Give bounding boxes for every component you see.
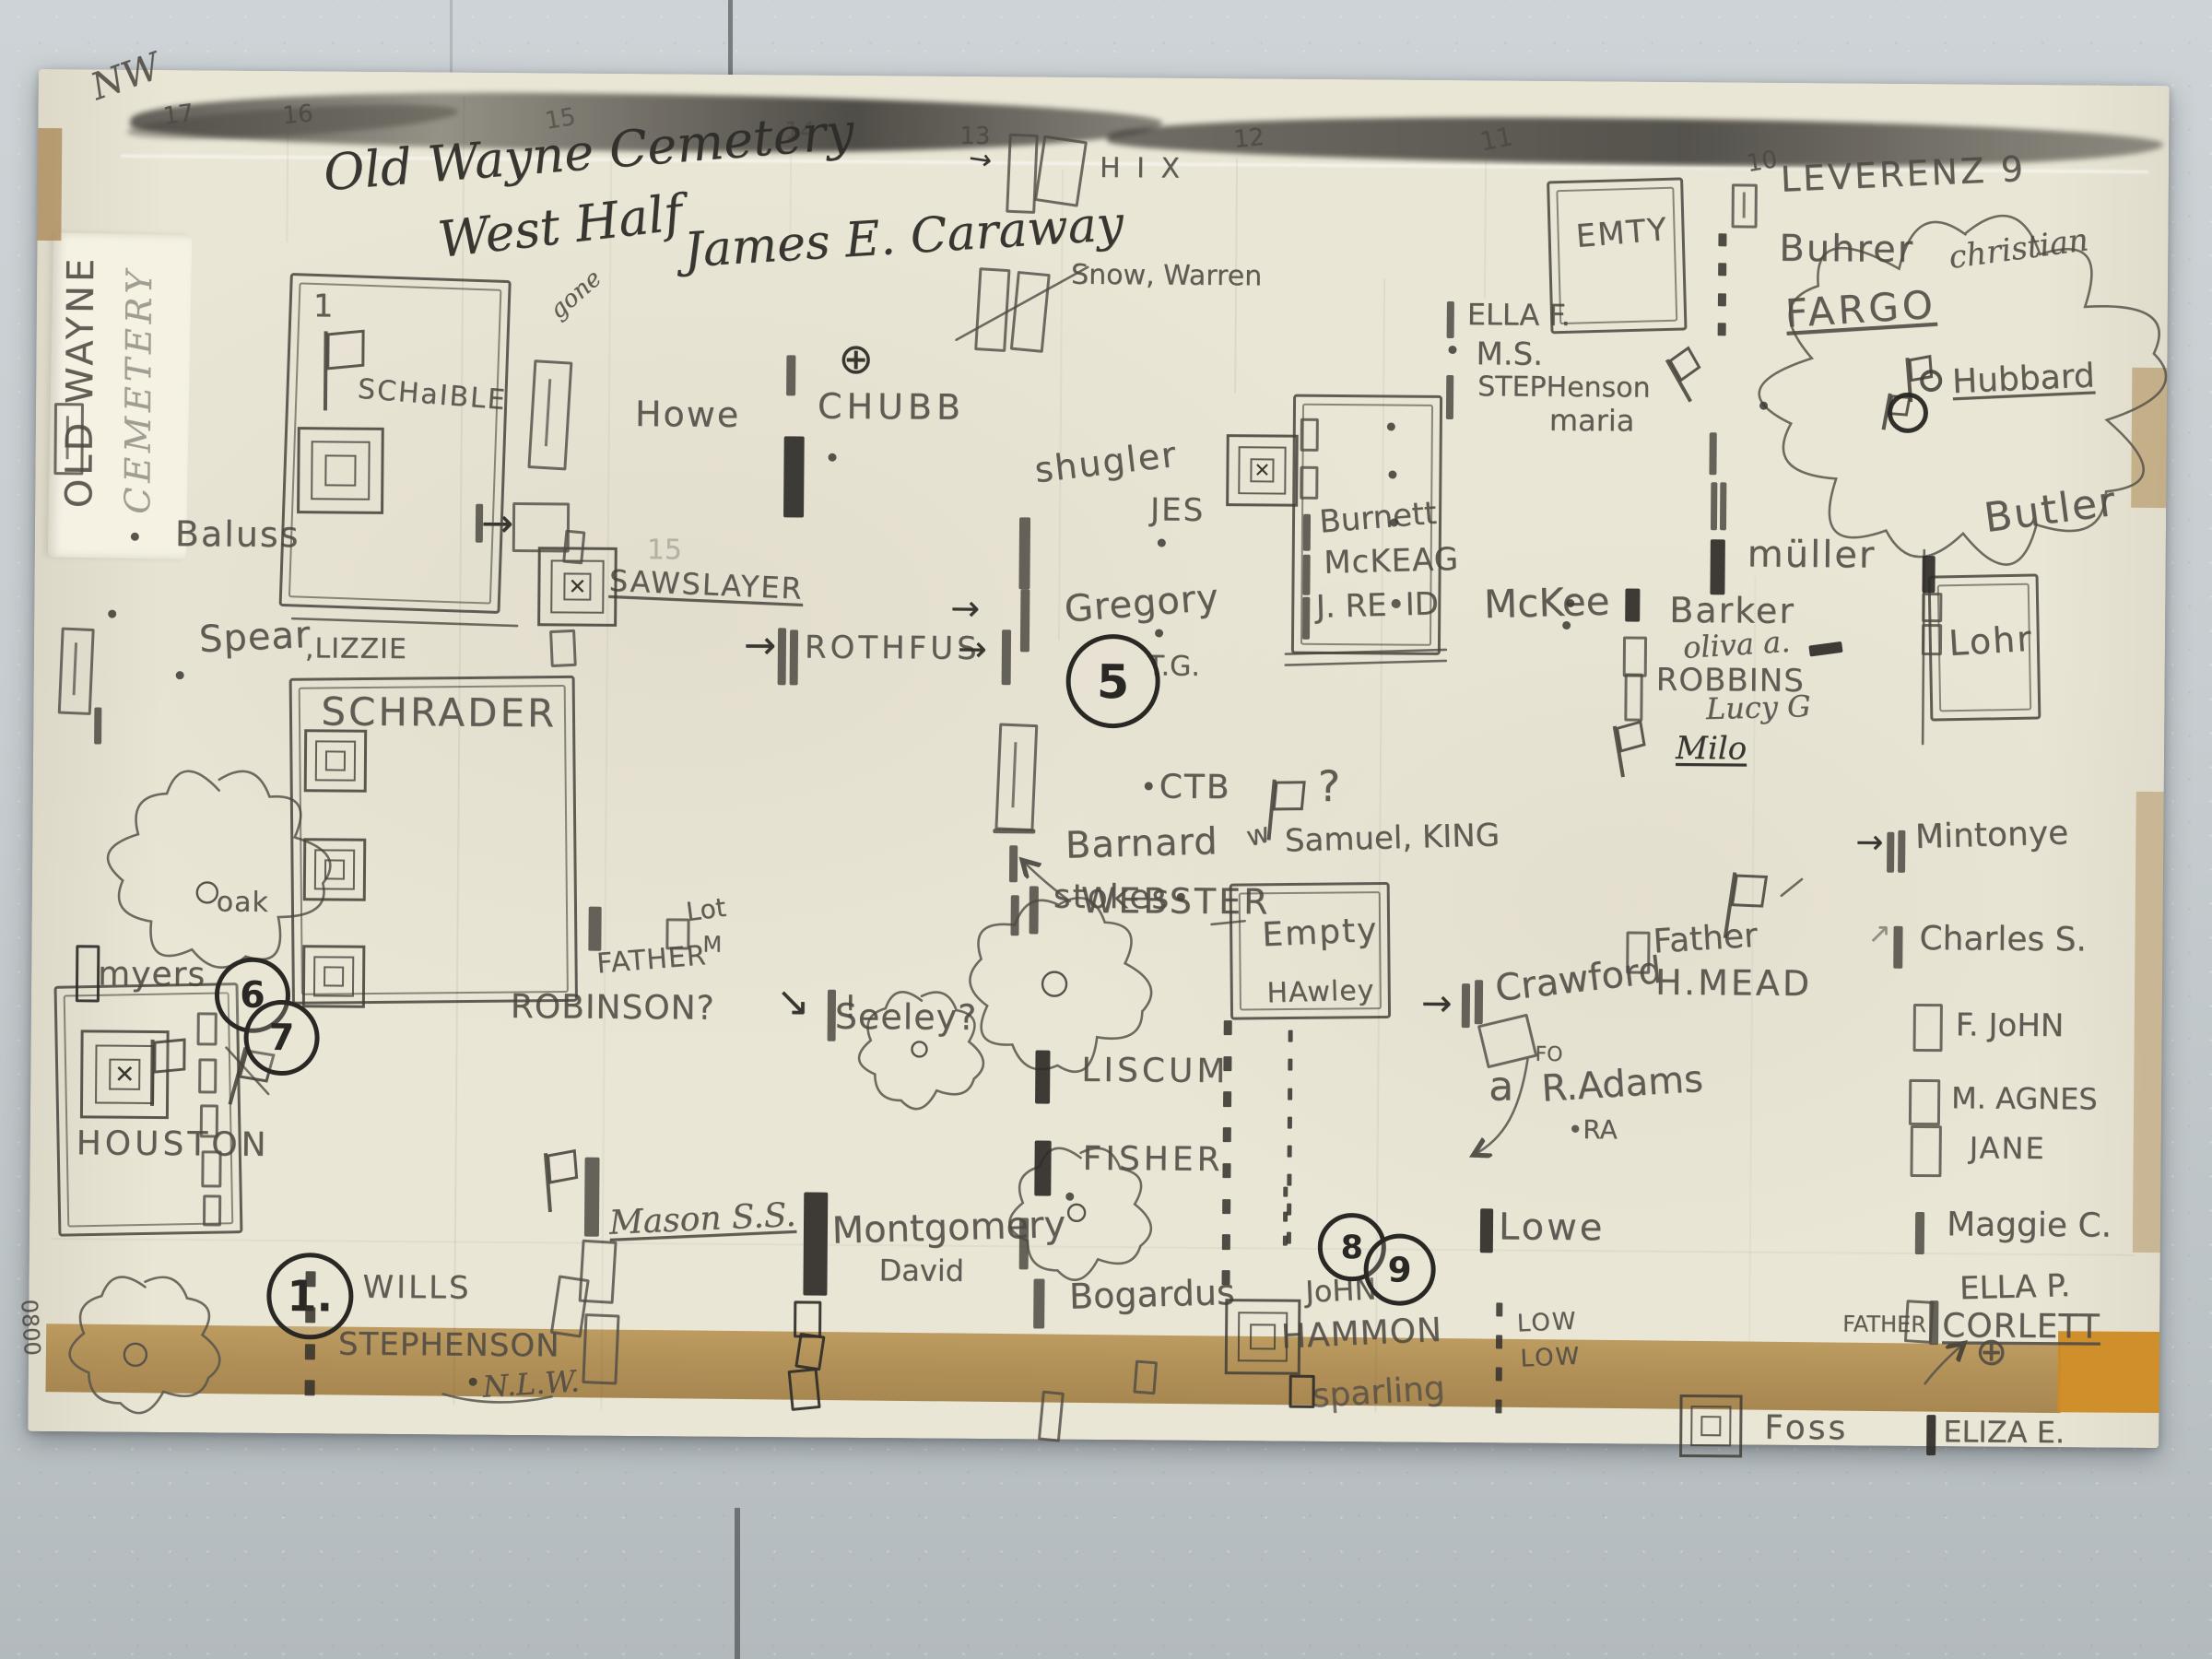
glyph-sawslayer-nest-mid: ✕ xyxy=(550,560,604,614)
dash xyxy=(1288,1030,1293,1042)
label-ellap: ELLA P. xyxy=(1959,1270,2071,1304)
grave-marker-8 xyxy=(549,629,577,667)
grave-marker-19 xyxy=(1009,845,1018,882)
crease-line-8 xyxy=(286,132,288,242)
label-corlett: CORLETT xyxy=(1942,1310,2100,1344)
grave-marker-73 xyxy=(201,1150,221,1187)
grave-marker-16 xyxy=(1002,629,1011,685)
label-montgomery: Montgomery xyxy=(831,1206,1066,1250)
grave-marker-68 xyxy=(1302,555,1310,595)
ring-hubbard xyxy=(1888,393,1928,433)
label-0800: 0800 xyxy=(18,1299,43,1356)
grave-marker-61 xyxy=(1624,673,1642,721)
pencil-dot-10 xyxy=(1562,621,1571,629)
grave-marker-69 xyxy=(1302,597,1310,640)
label-ra: •RA xyxy=(1568,1117,1618,1143)
dash xyxy=(1288,1116,1292,1128)
glyph-hammon-nest-core xyxy=(1250,1324,1277,1350)
grave-marker-57 xyxy=(1720,482,1726,530)
arrow-mintonye: → xyxy=(1855,826,1883,859)
label-15-faint: 15 xyxy=(647,536,682,564)
glyph-hammon-nest xyxy=(1225,1299,1301,1375)
glyph-burnett-nest-core: ✕ xyxy=(1250,458,1275,483)
label-barnard: Barnard xyxy=(1065,823,1218,864)
plot-emty xyxy=(1547,177,1687,334)
photo-of-cemetery-map: { "scene":{"pencil":"#4e4a43","pencil_da… xyxy=(0,0,2212,1659)
grave-marker-42 xyxy=(1887,832,1894,873)
dash xyxy=(1224,1020,1232,1035)
label-sparling: sparling xyxy=(1312,1372,1446,1414)
flag-barker-milo xyxy=(1613,721,1657,778)
label-low2: LOW xyxy=(1520,1345,1582,1371)
plot-empty-hawley-inner xyxy=(1239,891,1382,1010)
dash xyxy=(1222,1163,1230,1178)
arrow-13: → xyxy=(967,145,994,175)
tape-left-edge xyxy=(37,128,62,241)
pencil-dot-7 xyxy=(1177,893,1185,901)
grave-marker-60 xyxy=(1623,636,1647,677)
author: James E. Caraway xyxy=(683,200,1125,275)
glyph-foss-nest-mid xyxy=(1690,1406,1732,1447)
grave-marker-41 xyxy=(1626,932,1650,974)
side-cemetery: CEMETERY xyxy=(120,266,157,514)
label-ms: M.S. xyxy=(1476,338,1543,371)
grave-marker-74 xyxy=(203,1194,221,1226)
pencil-dot-13 xyxy=(1388,470,1396,478)
crease-line-6 xyxy=(1484,159,1487,298)
grave-marker-43 xyxy=(1898,830,1905,873)
label-foss: Foss xyxy=(1764,1412,1848,1446)
pencil-dot-1 xyxy=(108,610,116,618)
flag-leverenz-col xyxy=(1665,344,1718,402)
label-hubbard: Hubbard xyxy=(1951,359,2095,399)
glyph-schrader-3-core xyxy=(324,966,345,987)
label-christian: christian xyxy=(1947,224,2089,274)
glyph-hammon-nest-mid xyxy=(1237,1312,1288,1362)
label-ctb: CTB xyxy=(1159,771,1231,806)
glyph-cross-eliza: ⊕ xyxy=(1975,1332,2008,1371)
label-muller: müller xyxy=(1747,536,1877,574)
arrow-crawford: → xyxy=(1421,985,1453,1022)
tick-10: 10 xyxy=(1745,147,1779,176)
label-hix: H I X xyxy=(1100,155,1183,183)
glyph-schrader-1-core xyxy=(324,750,346,771)
grave-marker-79 xyxy=(665,918,689,949)
grave-marker-62 xyxy=(1808,641,1842,657)
grave-marker-51 xyxy=(1926,1415,1935,1455)
grave-marker-35 xyxy=(1133,1360,1158,1395)
bush-stokes-2-center xyxy=(1068,1205,1085,1221)
label-lizzie: ,LIZZIE xyxy=(305,635,407,664)
grave-marker-20 xyxy=(1010,895,1018,935)
flag-pennant xyxy=(1668,346,1700,382)
plot-emty-inner xyxy=(1556,187,1677,324)
grave-marker-45 xyxy=(1913,1004,1943,1052)
dotcol-stephenson xyxy=(304,1271,315,1417)
dash xyxy=(1223,1056,1231,1071)
label-excl: ! xyxy=(844,992,857,1023)
pencil-dot-15 xyxy=(469,1378,477,1386)
grave-marker-12 xyxy=(1018,517,1030,589)
dash xyxy=(1287,1174,1291,1186)
glyph-houston-nest-mid: ✕ xyxy=(95,1044,155,1104)
flag-pennant xyxy=(153,1038,186,1073)
arrow-rothfus-2: → xyxy=(958,631,987,666)
label-stokes: stokes xyxy=(1053,881,1171,915)
label-father-rob: FATHER xyxy=(595,942,707,978)
marker-inscription-line xyxy=(73,642,77,695)
arrow-gregory: → xyxy=(950,591,980,626)
glyph-burnett-nest: ✕ xyxy=(1226,434,1299,507)
grave-marker-11 xyxy=(783,436,805,517)
grave-marker-22 xyxy=(1035,1050,1050,1103)
glyph-schaible-nest-mid xyxy=(311,441,370,500)
arrow-seeley: ↘ xyxy=(776,982,810,1022)
marker-inscription-line xyxy=(545,379,551,446)
grave-marker-7 xyxy=(562,530,585,565)
flag-pennant xyxy=(1731,875,1768,908)
label-mckee: McKee xyxy=(1483,582,1610,625)
tree-oak-center xyxy=(197,882,218,902)
label-stephenson: STEPHENSON xyxy=(338,1329,560,1362)
grave-marker-9 xyxy=(476,504,483,543)
grave-marker-32 xyxy=(794,1333,825,1371)
label-butler: Butler xyxy=(1982,482,2119,540)
glyph-schrader-2 xyxy=(303,838,367,901)
pencil-dot-0 xyxy=(131,533,139,541)
dash xyxy=(1496,1367,1502,1381)
grave-marker-64 xyxy=(1446,375,1453,419)
dash xyxy=(1496,1302,1502,1316)
label-fargo: FARGO xyxy=(1784,286,1937,334)
curve-mead-dash xyxy=(1782,879,1802,896)
label-shugler: shugler xyxy=(1033,437,1180,488)
cemetery-map-paper: NW1716151413121110H I XLEVERENZ 9Buhrerc… xyxy=(28,69,2170,1448)
flag-pennant xyxy=(326,330,364,371)
label-mintonye: Mintonye xyxy=(1914,817,2068,853)
pencil-dot-16 xyxy=(1759,402,1768,410)
label-sawslayer: SAWSLAYER xyxy=(608,566,804,604)
label-spear: Spear xyxy=(198,617,312,658)
grave-marker-44 xyxy=(1893,926,1902,969)
pencil-dot-6 xyxy=(1145,782,1153,790)
grave-marker-14 xyxy=(778,628,786,685)
grave-marker-53 xyxy=(1922,593,1942,622)
grave-marker-80 xyxy=(828,990,836,1041)
tick-11: 11 xyxy=(1477,124,1515,156)
grave-marker-59 xyxy=(1625,588,1640,621)
grave-marker-76 xyxy=(53,403,84,475)
dash xyxy=(1283,1187,1288,1197)
grave-marker-50 xyxy=(1929,1300,1938,1345)
label-oak: oak xyxy=(217,888,269,916)
grave-marker-81 xyxy=(588,907,601,951)
plot-lohr-inner xyxy=(1937,583,2032,712)
label-chubb: CHUBB xyxy=(818,389,965,425)
dash xyxy=(1222,1270,1230,1285)
flag-houston-1 xyxy=(150,1040,197,1106)
circled-9: 9 xyxy=(1363,1233,1436,1306)
arrow-charles: ↗ xyxy=(1867,921,1890,948)
circled-5: 5 xyxy=(1065,634,1160,729)
dash xyxy=(1222,1199,1230,1214)
dash xyxy=(1718,264,1726,276)
dotcol-hawley-left xyxy=(1221,1020,1231,1306)
label-elizae: ELIZA E. xyxy=(1943,1417,2065,1447)
label-bogardus: Bogardus xyxy=(1069,1275,1236,1314)
circled-7: 7 xyxy=(243,1000,320,1077)
plot-empty-hawley xyxy=(1230,882,1391,1020)
label-jane: JANE xyxy=(1970,1133,2046,1163)
tick-12: 12 xyxy=(1232,125,1265,152)
label-milo: Milo xyxy=(1676,733,1747,765)
tape-right-edge-2 xyxy=(2133,792,2164,1253)
dash xyxy=(1283,1211,1288,1221)
crease-line-9 xyxy=(52,1238,2135,1256)
flag-schaible xyxy=(324,331,380,410)
bush-stokes-1-center xyxy=(912,1041,926,1056)
pencil-dot-9 xyxy=(1566,599,1574,607)
grave-marker-63 xyxy=(1447,301,1454,338)
grave-marker-36 xyxy=(1288,1375,1314,1408)
label-nlw: N.L.W. xyxy=(482,1366,581,1401)
tree-webster xyxy=(970,897,1152,1072)
marker-inscription-line xyxy=(1012,742,1018,808)
flag-mason xyxy=(544,1150,590,1212)
pencil-dot-2 xyxy=(176,671,184,679)
glyph-cross-chubb: ⊕ xyxy=(838,337,874,380)
grave-marker-31 xyxy=(794,1300,821,1337)
grave-marker-4 xyxy=(1732,183,1758,228)
label-maggie: Maggie C. xyxy=(1947,1208,2112,1242)
dash xyxy=(1223,1092,1231,1107)
label-barker: Barker xyxy=(1669,593,1795,629)
grave-marker-75 xyxy=(76,945,100,1002)
grave-marker-10 xyxy=(786,355,795,395)
dash xyxy=(1718,293,1726,306)
grave-marker-71 xyxy=(198,1058,217,1093)
grave-marker-40 xyxy=(1477,1014,1538,1069)
grave-marker-23 xyxy=(1034,1140,1051,1195)
pencil-dot-4 xyxy=(1158,538,1166,547)
dash xyxy=(1288,1088,1292,1100)
flag-pennant xyxy=(1616,720,1646,753)
tick-16: 16 xyxy=(282,101,314,128)
label-lowe: Lowe xyxy=(1499,1208,1606,1246)
glyph-schaible-nest xyxy=(297,427,384,514)
pencil-dot-3 xyxy=(829,453,837,462)
marker-inscription-line xyxy=(66,416,69,459)
grave-marker-38 xyxy=(1462,983,1470,1028)
grave-marker-66 xyxy=(1300,466,1318,500)
dotcol-low xyxy=(1495,1302,1502,1431)
tree-webster-center xyxy=(1042,972,1066,996)
grave-marker-70 xyxy=(197,1012,218,1045)
glyph-schrader-3 xyxy=(302,945,366,1008)
glyph-schaible-nest-core xyxy=(325,455,357,487)
label-charles: Charles S. xyxy=(1919,923,2087,957)
grave-marker-56 xyxy=(1711,482,1717,530)
grave-marker-37 xyxy=(1480,1208,1493,1253)
ring-hubbard-sm xyxy=(1920,370,1942,392)
label-fisher: FISHER xyxy=(1082,1143,1223,1177)
dash xyxy=(1288,1059,1292,1071)
tick-17: 17 xyxy=(162,101,195,129)
grave-marker-65 xyxy=(1300,418,1319,452)
dash xyxy=(1288,1146,1292,1158)
label-low1: LOW xyxy=(1516,1310,1578,1336)
grave-marker-24 xyxy=(1033,1278,1044,1328)
label-question: ? xyxy=(1318,765,1341,807)
label-lucy: Lucy G xyxy=(1706,691,1811,724)
grave-marker-34 xyxy=(1038,1391,1065,1442)
grave-marker-52 xyxy=(1922,556,1935,593)
grave-marker-67 xyxy=(1303,514,1311,551)
label-gregory: Gregory xyxy=(1063,579,1220,628)
label-jes: JES xyxy=(1150,494,1205,525)
wall-seam-bottom xyxy=(735,1508,740,1659)
glyph-foss-nest-core xyxy=(1700,1416,1722,1437)
grave-marker-15 xyxy=(790,629,798,685)
label-stephenson-ms: STEPHenson xyxy=(1477,373,1651,402)
dash xyxy=(305,1381,315,1396)
dash xyxy=(1283,1236,1288,1246)
glyph-schrader-1-mid xyxy=(314,740,356,782)
grave-marker-54 xyxy=(1922,624,1942,655)
tape-right-edge-1 xyxy=(2131,368,2167,508)
label-a: a xyxy=(1488,1066,1513,1107)
grave-marker-39 xyxy=(1475,980,1483,1024)
label-fo: FO xyxy=(1535,1045,1562,1065)
glyph-sawslayer-nest-core: ✕ xyxy=(563,572,591,600)
marker-inscription-line xyxy=(1742,193,1745,218)
grave-marker-77 xyxy=(58,628,95,715)
title-2: West Half xyxy=(436,188,686,265)
grave-marker-2 xyxy=(974,267,1010,352)
grave-marker-48 xyxy=(1915,1212,1924,1254)
curve-burnett-base-2 xyxy=(1286,660,1446,666)
dash xyxy=(305,1344,315,1359)
dotcol-leverenz xyxy=(1717,233,1726,353)
grave-marker-78 xyxy=(94,707,101,744)
label-fjohn: F. JoHN xyxy=(1956,1009,2065,1041)
dash xyxy=(305,1308,315,1324)
grave-marker-47 xyxy=(1910,1125,1941,1177)
grave-marker-3 xyxy=(1010,271,1051,353)
glyph-schrader-3-mid xyxy=(313,956,355,997)
flag-pennant xyxy=(547,1149,578,1183)
label-liscum: LISCUM xyxy=(1081,1054,1229,1088)
curve-schaible-underline xyxy=(292,618,517,626)
pencil-dot-8 xyxy=(1065,1193,1074,1201)
grave-marker-55 xyxy=(1709,432,1716,475)
label-gone: gone xyxy=(546,266,606,324)
grave-marker-17 xyxy=(994,723,1038,831)
label-m: M xyxy=(702,934,722,956)
plot-burnett-mckeag-reid-inner xyxy=(1300,404,1433,646)
glyph-houston-nest-core: ✕ xyxy=(109,1059,140,1090)
label-mason: Mason S.S. xyxy=(608,1199,796,1241)
label-maria: maria xyxy=(1549,406,1635,436)
label-rothfus: ROTHFUS xyxy=(805,631,981,664)
grave-marker-26 xyxy=(1019,1218,1029,1269)
grave-marker-6 xyxy=(512,502,570,552)
grave-marker-33 xyxy=(788,1368,821,1411)
grave-marker-58 xyxy=(1710,539,1724,594)
wall-seam-top xyxy=(728,0,733,81)
glyph-burnett-nest-mid: ✕ xyxy=(1238,446,1286,494)
pencil-dot-14 xyxy=(1390,518,1398,526)
glyph-schrader-2-core xyxy=(324,859,346,880)
label-david: David xyxy=(879,1255,965,1286)
glyph-schrader-2-mid xyxy=(314,849,356,890)
grave-marker-5 xyxy=(527,359,572,470)
label-radams: R.Adams xyxy=(1540,1061,1704,1108)
glyph-foss-nest xyxy=(1679,1394,1743,1458)
dash xyxy=(1718,233,1726,246)
label-howe: Howe xyxy=(635,396,741,432)
grave-marker-18 xyxy=(993,829,1035,833)
flag-king xyxy=(1267,780,1315,844)
dash xyxy=(1496,1335,1502,1348)
label-samuel-king: Samuel, KING xyxy=(1284,819,1500,856)
dash xyxy=(1718,324,1726,336)
dash xyxy=(305,1271,315,1287)
label-lot: Lot xyxy=(685,895,728,925)
grave-marker-27 xyxy=(584,1158,600,1237)
label-hammon: HAMMON xyxy=(1280,1314,1443,1355)
label-leverenz: LEVERENZ 9 xyxy=(1780,151,2027,197)
grave-marker-13 xyxy=(1020,589,1030,652)
glyph-schrader-1 xyxy=(304,729,368,793)
grave-marker-0 xyxy=(1006,134,1039,214)
label-oliva: oliva a. xyxy=(1682,627,1791,663)
label-hmead: H.MEAD xyxy=(1655,965,1812,1001)
grave-marker-46 xyxy=(1909,1079,1940,1125)
plot-lohr xyxy=(1928,573,2041,721)
grave-marker-21 xyxy=(1030,886,1039,934)
dash xyxy=(1495,1399,1501,1413)
label-magnes: M. AGNES xyxy=(1951,1083,2098,1113)
pencil-dot-5 xyxy=(1155,629,1163,637)
pencil-dot-11 xyxy=(1448,346,1456,354)
flag-pennant xyxy=(1273,781,1306,811)
grave-marker-72 xyxy=(200,1104,218,1137)
arrow-rothfus-1: → xyxy=(744,626,777,665)
label-snow: Snow, Warren xyxy=(1071,262,1262,291)
dash xyxy=(1223,1127,1231,1142)
label-buhrer: Buhrer xyxy=(1779,230,1914,268)
pencil-dot-12 xyxy=(1387,422,1395,430)
